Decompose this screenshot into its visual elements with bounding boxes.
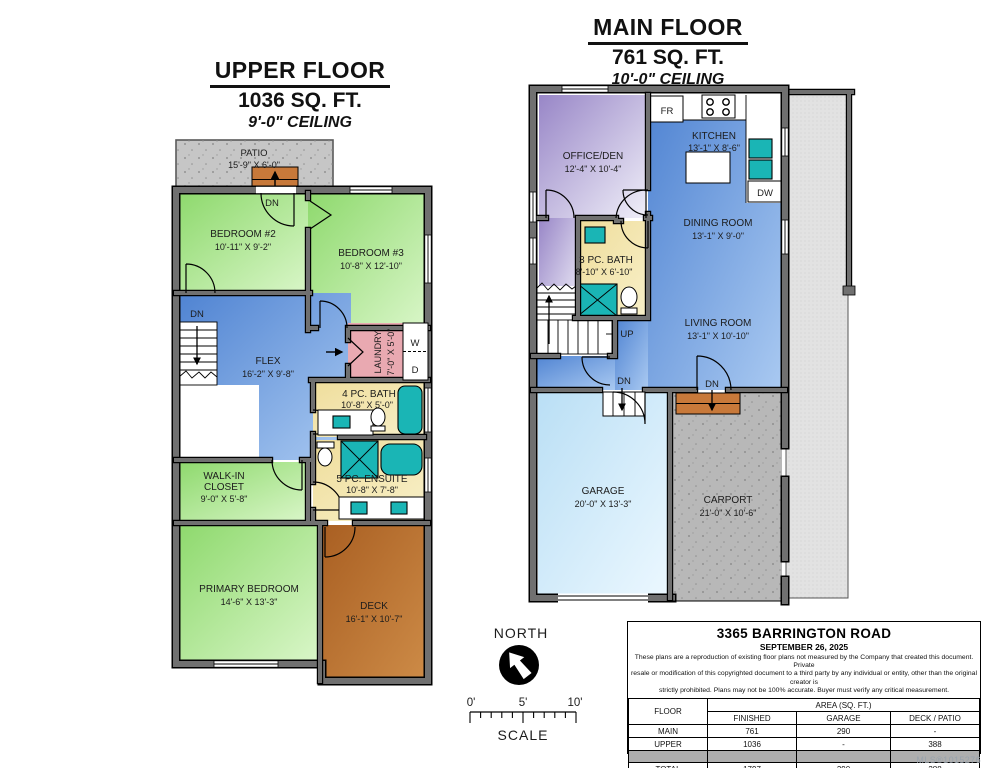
garage-door	[558, 594, 648, 603]
sink-icon	[333, 416, 350, 428]
row-main-finished: 761	[708, 725, 797, 738]
dishwasher-label: DW	[757, 188, 773, 199]
bath3-label: 3 PC. BATH	[579, 255, 633, 266]
toilet-icon	[371, 408, 385, 426]
sink-icon	[585, 227, 605, 243]
closet-label-2: CLOSET	[204, 482, 244, 493]
flex-dim: 16'-2" X 9'-8"	[242, 369, 294, 379]
dryer-label: D	[412, 365, 419, 376]
disclaimer-line-2: resale or modification of this copyright…	[628, 670, 980, 686]
patio-dn-label: DN	[265, 198, 279, 209]
bath4-label: 4 PC. BATH	[342, 389, 396, 400]
primary-label: PRIMARY BEDROOM	[199, 584, 299, 595]
col-deck-patio: DECK / PATIO	[891, 712, 980, 725]
garage-dim: 20'-0" X 13'-3"	[575, 499, 632, 509]
bathtub-icon	[398, 386, 422, 434]
kitchen-label: KITCHEN	[692, 131, 736, 142]
main-floor-plan: FR DW OFFICE/DEN 12'-4" X 10'-4" KITCHEN…	[530, 86, 855, 603]
front-dn-label: DN	[705, 379, 719, 390]
toilet-icon	[621, 287, 637, 307]
plan-date: SEPTEMBER 26, 2025	[628, 642, 980, 652]
dining-dim: 13'-1" X 9'-0"	[692, 231, 744, 241]
sink-icon	[391, 502, 407, 514]
hall-dn-label: DN	[617, 376, 631, 387]
disclaimer-line-3: strictly prohibited. Plans may not be 10…	[628, 687, 980, 695]
living-label: LIVING ROOM	[685, 318, 752, 329]
ensuite-label: 5 PC. ENSUITE	[336, 474, 407, 485]
row-upper-name: UPPER	[629, 738, 708, 751]
dining-label: DINING ROOM	[684, 218, 753, 229]
patio-dim: 15'-9" X 6'-0"	[228, 160, 280, 170]
area-header: AREA (SQ. FT.)	[708, 699, 980, 712]
primary-dim: 14'-6" X 13'-3"	[221, 597, 278, 607]
garage-label: GARAGE	[582, 486, 625, 497]
carport-dim: 21'-0" X 10'-6"	[700, 508, 757, 518]
toilet-icon	[318, 448, 332, 466]
mls-number: MLS®1015276	[627, 755, 981, 765]
address: 3365 BARRINGTON ROAD	[628, 626, 980, 641]
scale-label: SCALE	[498, 727, 549, 743]
sink-icon	[749, 160, 772, 179]
sink-icon	[351, 502, 367, 514]
kitchen-dim: 13'-1" X 8'-6"	[688, 143, 740, 153]
scale-tick-10: 10'	[568, 697, 583, 709]
bath4-dim: 10'-8" X 5'-0"	[341, 400, 393, 410]
table-row: UPPER 1036 - 388	[629, 738, 980, 751]
washer-label: W	[411, 338, 420, 349]
floor-header: FLOOR	[629, 699, 708, 725]
office-label: OFFICE/DEN	[563, 151, 624, 162]
island-icon	[686, 152, 730, 183]
living-dim: 13'-1" X 10'-10"	[687, 331, 749, 341]
info-block: 3365 BARRINGTON ROAD SEPTEMBER 26, 2025 …	[627, 621, 981, 754]
upper-stairs	[179, 322, 217, 385]
upper-floor-plan: PATIO 15'-9" X 6'-0" DN BEDROOM #2 10'-1…	[176, 140, 431, 681]
deck-label: DECK	[360, 601, 388, 612]
table-row: MAIN 761 290 -	[629, 725, 980, 738]
scale-bar: 0' 5' 10' SCALE	[467, 697, 583, 743]
col-finished: FINISHED	[708, 712, 797, 725]
row-main-deck: -	[891, 725, 980, 738]
col-garage: GARAGE	[797, 712, 891, 725]
sink-icon	[749, 139, 772, 158]
row-upper-deck: 388	[891, 738, 980, 751]
bathtub-icon	[381, 444, 422, 475]
bedroom2-label: BEDROOM #2	[210, 229, 276, 240]
ensuite-dim: 10'-8" X 7'-8"	[346, 485, 398, 495]
scale-tick-5: 5'	[519, 697, 528, 709]
north-label: NORTH	[494, 625, 549, 641]
floorplan-sheet: UPPER FLOOR 1036 SQ. FT. 9'-0" CEILING M…	[0, 0, 994, 768]
closet-label-1: WALK-IN	[203, 471, 244, 482]
closet-dim: 9'-0" X 5'-8"	[201, 494, 248, 504]
side-strip	[786, 92, 855, 598]
fridge-label: FR	[661, 106, 674, 117]
row-main-name: MAIN	[629, 725, 708, 738]
office-dim: 12'-4" X 10'-4"	[565, 164, 622, 174]
entry-steps	[603, 388, 645, 416]
patio-label: PATIO	[240, 148, 267, 159]
stairs-dn-label: DN	[190, 309, 204, 320]
laundry-dim: 7'-0" X 5'-0"	[386, 329, 396, 376]
laundry-label: LAUNDRY	[373, 331, 383, 374]
front-steps	[676, 390, 740, 414]
bedroom3-label: BEDROOM #3	[338, 248, 404, 259]
row-upper-garage: -	[797, 738, 891, 751]
disclaimer: These plans are a reproduction of existi…	[628, 654, 980, 695]
row-upper-finished: 1036	[708, 738, 797, 751]
deck-dim: 16'-1" X 10'-7"	[346, 614, 403, 624]
compass: NORTH	[494, 625, 549, 685]
flex-label: FLEX	[255, 356, 280, 367]
bedroom2-dim: 10'-11" X 9'-2"	[215, 242, 271, 252]
row-main-garage: 290	[797, 725, 891, 738]
carport-label: CARPORT	[704, 495, 753, 506]
bedroom3-dim: 10'-8" X 12'-10"	[340, 261, 402, 271]
entry-hall	[533, 356, 615, 390]
up-label: UP	[620, 329, 633, 340]
bath3-dim: 8'-10" X 6'-10"	[576, 267, 633, 277]
stair-void	[179, 385, 259, 460]
scale-tick-0: 0'	[467, 697, 476, 709]
disclaimer-line-1: These plans are a reproduction of existi…	[628, 654, 980, 670]
stove-icon	[702, 95, 735, 118]
